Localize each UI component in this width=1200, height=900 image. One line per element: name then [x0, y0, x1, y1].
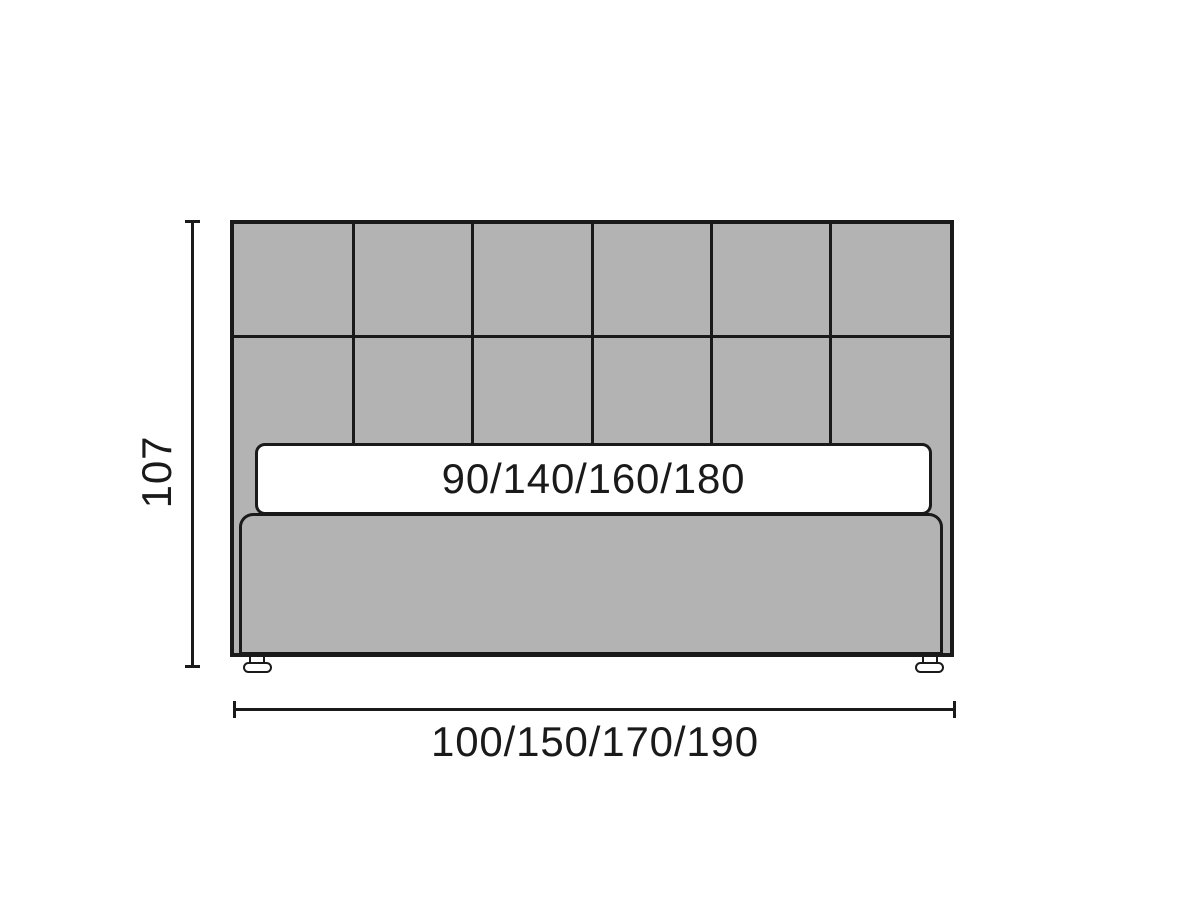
height-dimension-line: [191, 220, 194, 668]
mattress: 90/140/160/180: [255, 443, 932, 515]
width-dimension-tick-right: [953, 701, 956, 718]
width-dimension-line: [233, 708, 956, 711]
headboard-seam-horizontal: [234, 335, 950, 338]
bed-dimension-diagram: 90/140/160/180 107 100/150/170/190: [0, 0, 1200, 900]
height-label: 107: [132, 422, 182, 522]
width-dimension-tick-left: [233, 701, 236, 718]
width-label-text: 100/150/170/190: [431, 718, 759, 766]
height-dimension-tick-top: [185, 220, 200, 223]
height-label-text: 107: [133, 436, 181, 509]
bed-base: [239, 513, 943, 657]
foot-glide-left: [243, 662, 272, 673]
width-label: 100/150/170/190: [395, 716, 795, 768]
mattress-width-label: 90/140/160/180: [442, 455, 746, 503]
height-dimension-tick-bottom: [185, 665, 200, 668]
foot-glide-right: [915, 662, 944, 673]
